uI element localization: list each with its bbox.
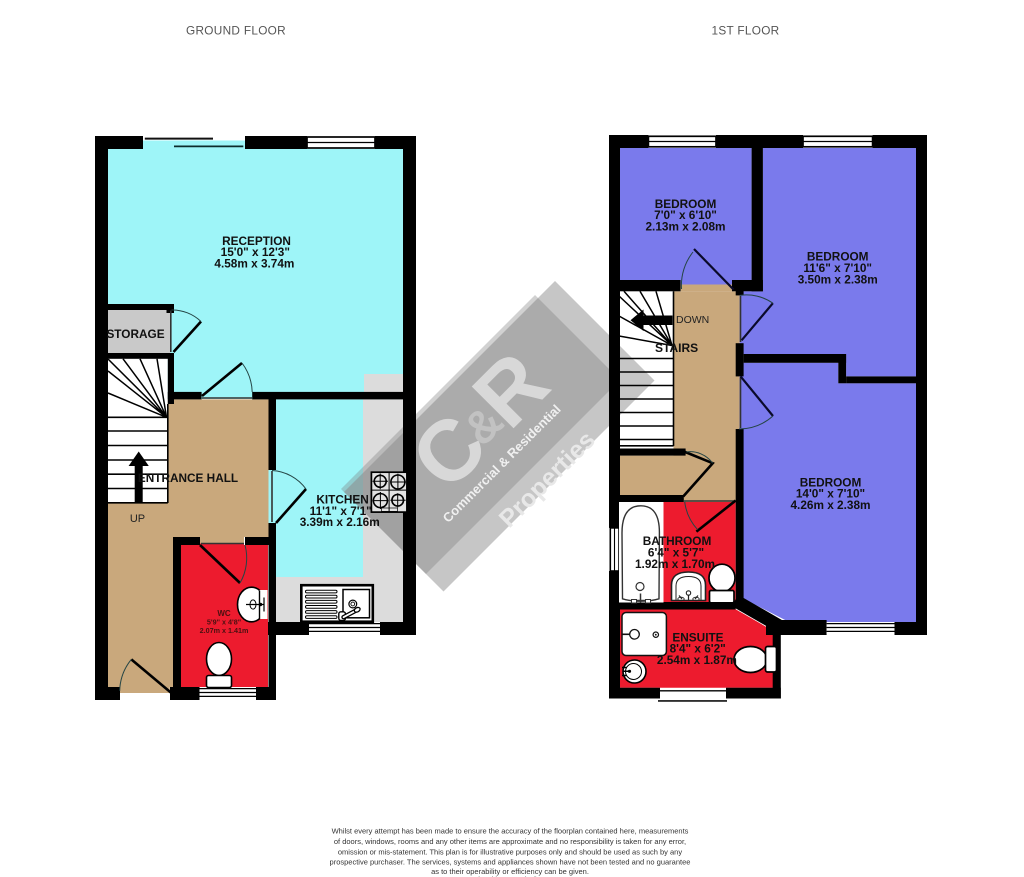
svg-text:STORAGE: STORAGE [106, 327, 164, 341]
svg-text:1.92m x 1.70m: 1.92m x 1.70m [635, 557, 715, 571]
svg-text:3.39m x 2.16m: 3.39m x 2.16m [300, 515, 380, 529]
svg-text:3.50m x 2.38m: 3.50m x 2.38m [798, 272, 878, 286]
svg-text:4.58m x 3.74m: 4.58m x 3.74m [214, 257, 294, 271]
svg-text:UP: UP [130, 513, 145, 525]
svg-text:of doors, windows, rooms and a: of doors, windows, rooms and any other i… [334, 837, 686, 846]
svg-text:Whilst every attempt has been: Whilst every attempt has been made to en… [332, 827, 689, 836]
svg-text:4.26m x 2.38m: 4.26m x 2.38m [790, 498, 870, 512]
svg-text:2.54m x 1.87m: 2.54m x 1.87m [657, 653, 737, 667]
svg-text:omission or mis-statement. Thi: omission or mis-statement. This plan is … [338, 847, 682, 856]
svg-text:DOWN: DOWN [676, 314, 709, 326]
svg-text:ENTRANCE HALL: ENTRANCE HALL [138, 471, 238, 485]
svg-text:prospective purchaser. The ser: prospective purchaser. The services, sys… [330, 858, 691, 867]
svg-text:STAIRS: STAIRS [655, 341, 698, 355]
svg-text:GROUND FLOOR: GROUND FLOOR [186, 24, 286, 38]
svg-text:1ST FLOOR: 1ST FLOOR [711, 24, 779, 38]
svg-text:2.07m x 1.41m: 2.07m x 1.41m [200, 626, 249, 635]
svg-text:2.13m x 2.08m: 2.13m x 2.08m [645, 220, 725, 234]
